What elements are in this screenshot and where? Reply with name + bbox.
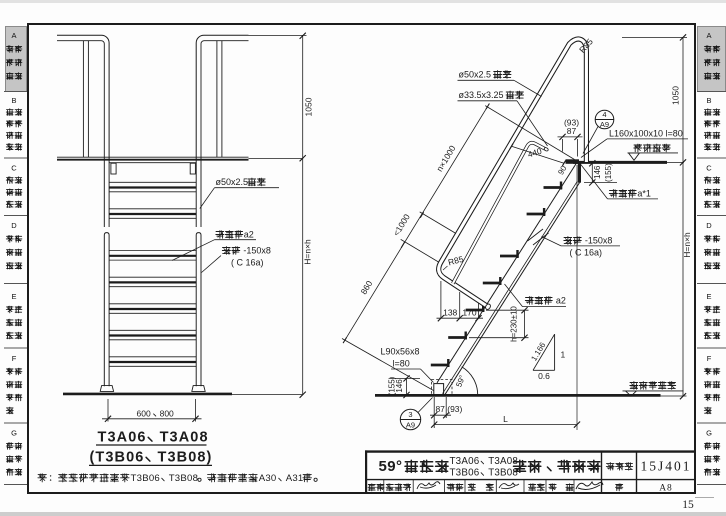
svg-text:59°: 59° — [379, 458, 403, 475]
svg-text:T3B06: T3B06 — [450, 468, 480, 479]
svg-text:15J401: 15J401 — [640, 459, 691, 474]
svg-text:T3A06: T3A06 — [450, 456, 480, 467]
svg-text:A8: A8 — [659, 483, 673, 493]
svg-text:T3B08: T3B08 — [488, 468, 518, 479]
